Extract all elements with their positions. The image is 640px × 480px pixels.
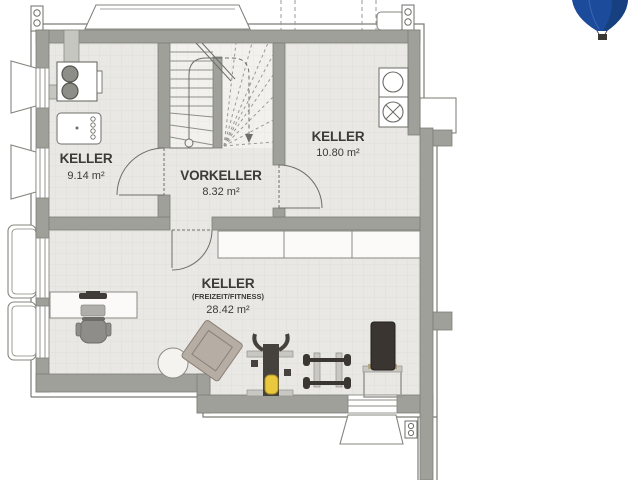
projection-dashed-lines <box>281 0 376 30</box>
flue-duct-vertical <box>64 30 79 64</box>
svg-text:9.14 m²: 9.14 m² <box>67 170 105 182</box>
wall-interior-horizontal-left <box>49 217 170 230</box>
laundry-sink <box>57 113 101 144</box>
light-well-bottom <box>340 415 403 444</box>
floorplan-page: { "logo": { "name": "hot-air-balloon-log… <box>0 0 640 480</box>
wall-stair-center <box>213 57 222 148</box>
exterior-hatch <box>377 12 404 30</box>
wall-stub-right-1 <box>433 130 452 146</box>
wall-right-upper <box>408 30 420 135</box>
svg-text:KELLER: KELLER <box>60 151 113 166</box>
light-well-left-2 <box>11 145 36 199</box>
wall-stair-right <box>273 43 285 165</box>
wall-interior-horizontal-right <box>212 217 420 230</box>
window-left-3 <box>36 238 49 298</box>
svg-text:8.32 m²: 8.32 m² <box>202 186 240 198</box>
rain-downpipe-top-right <box>402 5 414 30</box>
svg-text:(FREIZEIT/FITNESS): (FREIZEIT/FITNESS) <box>192 292 265 301</box>
washing-machine <box>379 68 408 97</box>
wall-top <box>36 30 420 43</box>
hot-air-balloon-logo <box>572 0 628 40</box>
svg-text:KELLER: KELLER <box>202 276 255 291</box>
floor-plan-svg: KELLER 9.14 m² VORKELLER 8.32 m² KELLER … <box>0 0 640 480</box>
svg-text:28.42 m²: 28.42 m² <box>206 304 250 316</box>
window-left-1 <box>36 68 49 108</box>
heating-boiler <box>57 62 102 101</box>
desk <box>50 291 137 318</box>
bench-seat <box>265 375 278 394</box>
svg-text:VORKELLER: VORKELLER <box>180 168 262 183</box>
wall-bottom-left <box>36 374 210 392</box>
wall-stub-right-2 <box>433 312 452 330</box>
laundry-appliances <box>379 68 408 127</box>
window-left-4 <box>36 306 49 358</box>
wall-right-lower <box>420 128 433 480</box>
rain-downpipe-top-left <box>31 6 43 31</box>
wall-stair-left <box>158 43 170 148</box>
rain-downpipe-bottom-right <box>405 421 417 438</box>
svg-text:KELLER: KELLER <box>312 129 365 144</box>
wall-shelving <box>218 231 420 258</box>
svg-text:10.80 m²: 10.80 m² <box>316 147 360 159</box>
light-well-left-1 <box>11 61 36 113</box>
balloon-basket <box>598 34 607 40</box>
window-left-2 <box>36 148 49 198</box>
desk-pad <box>81 305 105 316</box>
dryer-crossed-circle <box>379 97 408 127</box>
